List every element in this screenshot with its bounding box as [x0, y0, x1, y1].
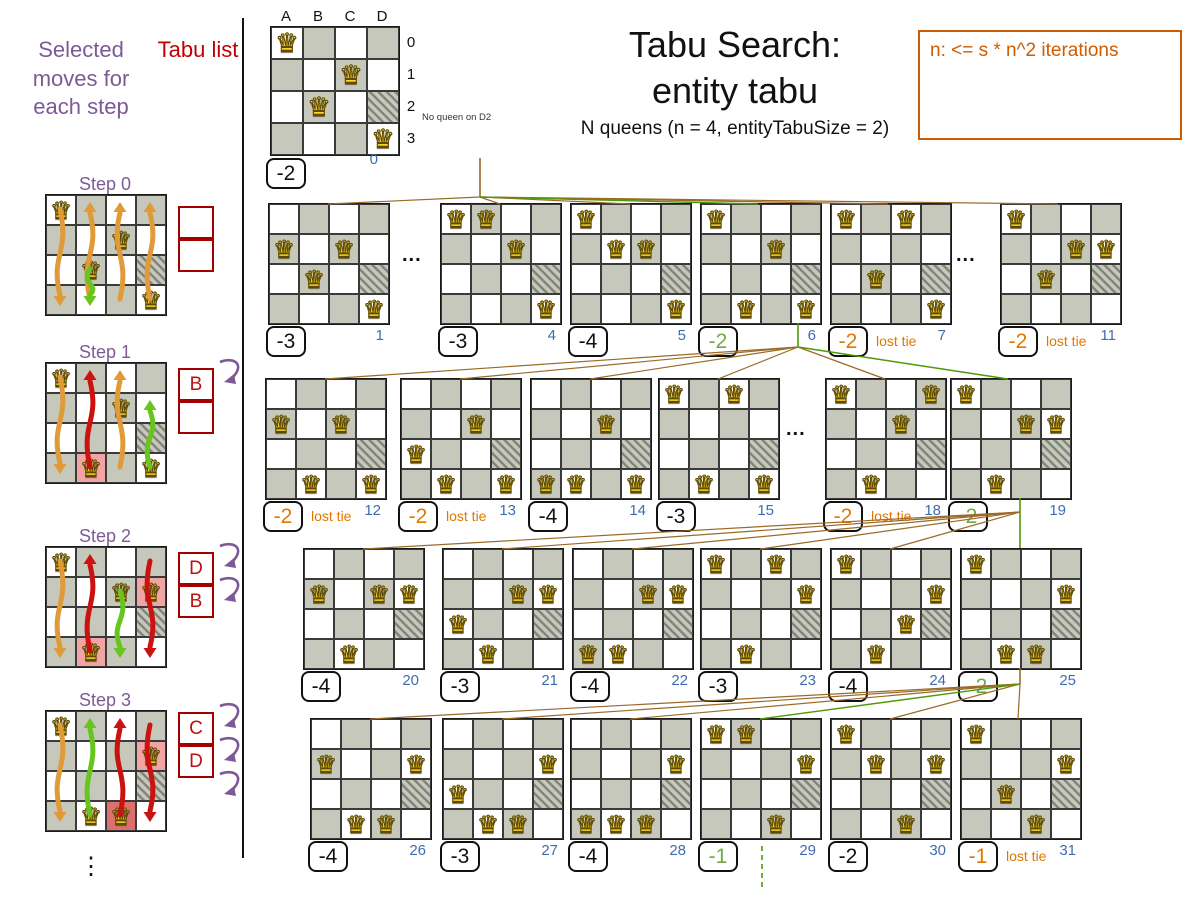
arrowhead	[224, 786, 236, 796]
arrowhead	[224, 752, 236, 762]
arc	[220, 704, 238, 724]
tabu-shift-arrow-icon	[216, 356, 250, 388]
arc	[220, 544, 238, 564]
tabu-search-diagram: Selected moves for each step Tabu list T…	[0, 0, 1200, 900]
tabu-shift-arrow-icon	[216, 700, 250, 732]
arrowhead	[224, 592, 236, 602]
tabu-shift-arrow-icon	[216, 768, 250, 800]
arc	[220, 772, 238, 792]
arc	[220, 578, 238, 598]
arrowhead	[224, 374, 236, 384]
arc	[220, 360, 238, 380]
arrowhead	[224, 558, 236, 568]
tree-connector-lines	[0, 0, 1200, 900]
arrowhead	[224, 718, 236, 728]
arc	[220, 738, 238, 758]
tabu-shift-arrow-icon	[216, 574, 250, 606]
tabu-shift-arrow-icon	[216, 734, 250, 766]
tabu-shift-arrow-icon	[216, 540, 250, 572]
